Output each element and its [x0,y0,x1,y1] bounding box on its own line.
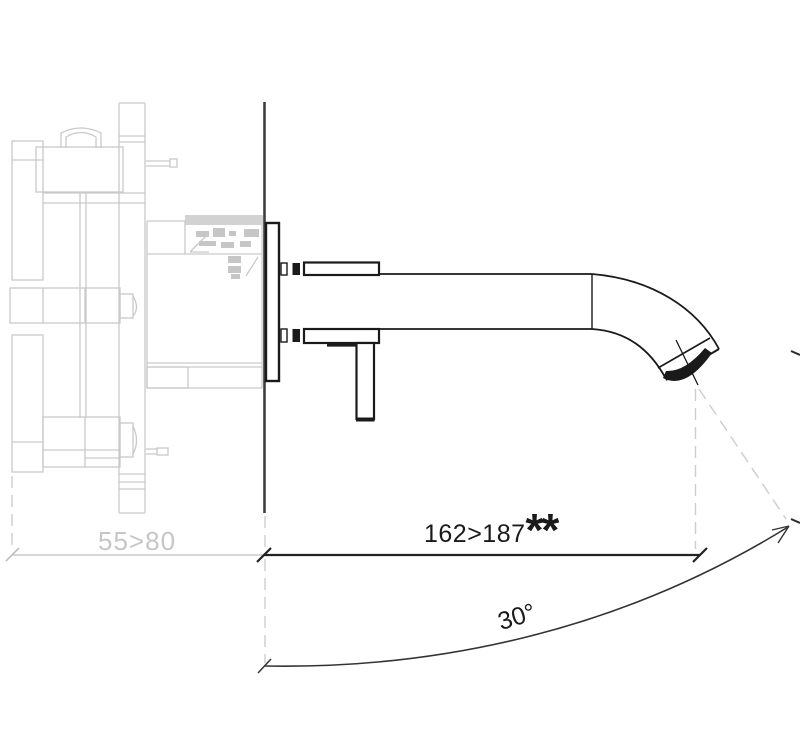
rough-in-depth-dimension-label: 55>80 [98,526,176,557]
aerator-outlet [663,348,712,381]
spout-collar-top [304,263,379,276]
spout-tube [379,274,719,385]
page-edge-ticks [791,351,800,523]
footnote-asterisks: ** [526,504,558,556]
spout-collar-bottom [304,329,379,343]
concealed-body-ghost [10,103,263,513]
lever-handle [357,343,375,419]
technical-drawing-page: 162>187** 55>80 30° [0,0,800,743]
spout-reach-dimension-label: 162>187** [424,520,557,549]
dimension-line-spout-reach [257,548,707,562]
faucet-assembly [266,223,719,420]
spout-reach-value: 162>187 [424,520,526,548]
drawing-canvas [0,0,800,743]
wall-plate [266,223,279,381]
